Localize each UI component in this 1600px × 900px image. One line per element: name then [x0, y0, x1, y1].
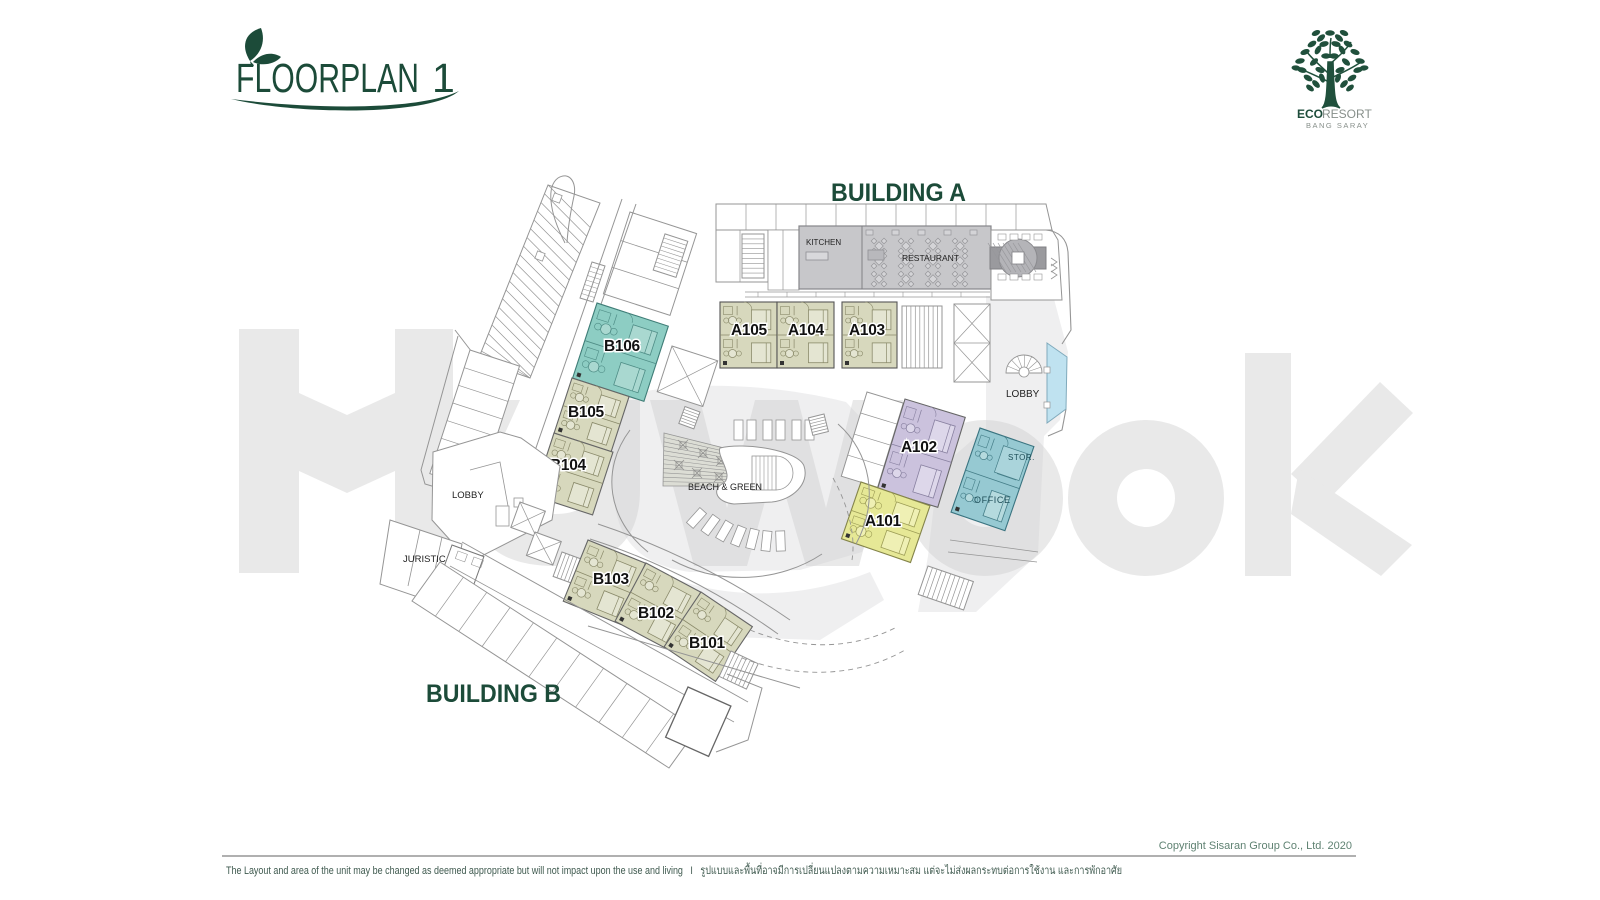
svg-text:B101: B101: [689, 635, 726, 652]
svg-text:Copyright Sisaran Group Co., L: Copyright Sisaran Group Co., Ltd. 2020: [1159, 840, 1352, 852]
svg-text:B102: B102: [638, 605, 674, 622]
svg-text:A104: A104: [788, 322, 825, 339]
svg-text:1: 1: [432, 55, 455, 101]
svg-text:LOBBY: LOBBY: [1006, 389, 1040, 400]
svg-text:LOBBY: LOBBY: [452, 490, 484, 501]
svg-text:RESTAURANT: RESTAURANT: [902, 253, 959, 263]
svg-text:KITCHEN: KITCHEN: [806, 238, 841, 247]
svg-text:BUILDING A: BUILDING A: [831, 179, 966, 207]
svg-text:B106: B106: [604, 338, 641, 355]
svg-text:A102: A102: [901, 439, 937, 456]
svg-text:RESORT: RESORT: [1322, 107, 1372, 121]
svg-text:B105: B105: [568, 404, 605, 421]
svg-text:ECO: ECO: [1297, 107, 1323, 121]
svg-text:A103: A103: [849, 322, 886, 339]
svg-text:A105: A105: [731, 322, 768, 339]
svg-text:OFFICE: OFFICE: [974, 495, 1011, 505]
svg-text:BANG SARAY: BANG SARAY: [1306, 121, 1369, 130]
svg-text:A101: A101: [865, 513, 902, 530]
svg-text:B103: B103: [593, 571, 630, 588]
svg-text:BUILDING B: BUILDING B: [426, 680, 561, 708]
svg-text:STOR.: STOR.: [1008, 453, 1035, 462]
svg-text:The Layout and area of the uni: The Layout and area of the unit may be c…: [226, 862, 1122, 877]
svg-text:BEACH & GREEN: BEACH & GREEN: [688, 482, 762, 492]
